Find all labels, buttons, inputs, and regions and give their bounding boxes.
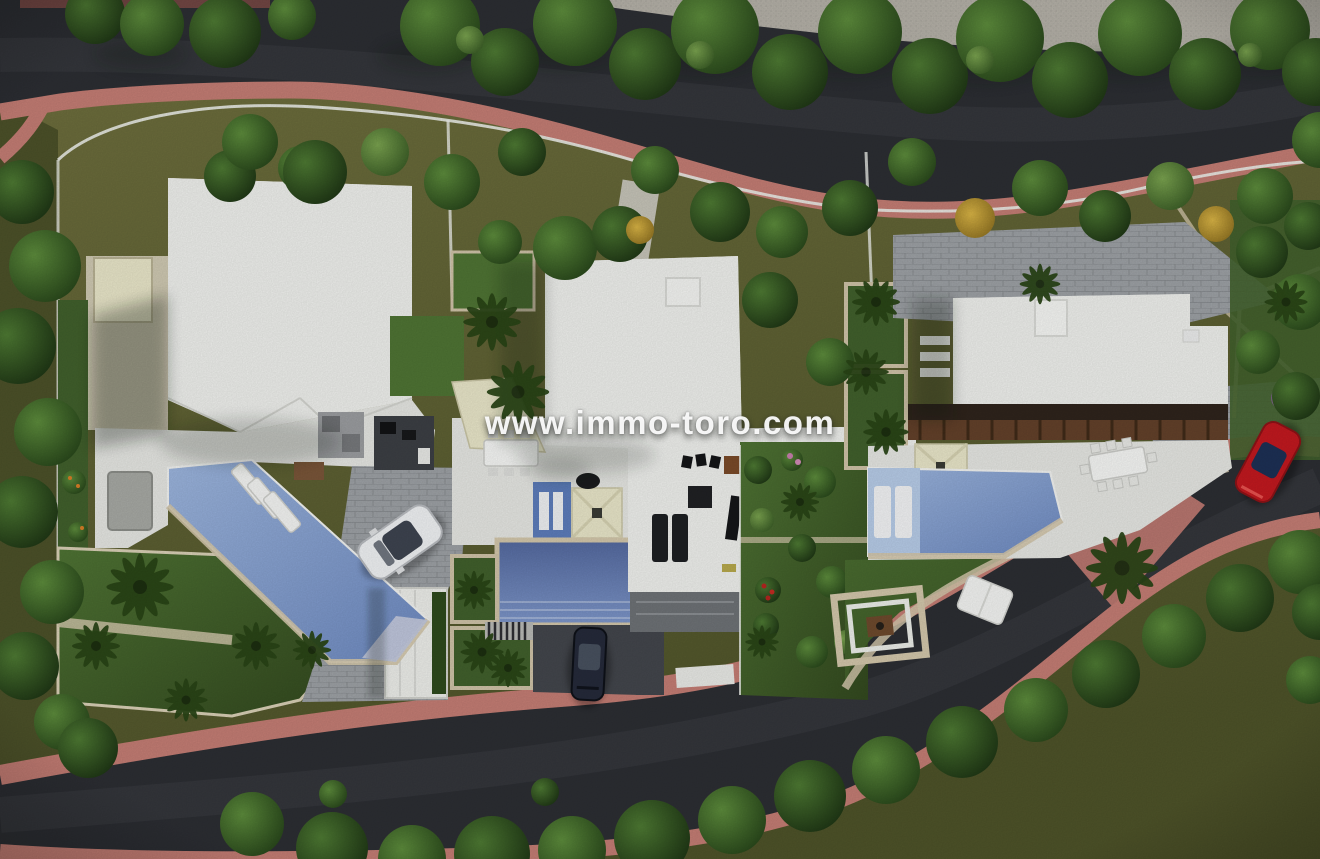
film-grain	[0, 0, 1320, 859]
site-plan-canvas	[0, 0, 1320, 859]
aerial-site-render: www.immo-toro.com	[0, 0, 1320, 859]
